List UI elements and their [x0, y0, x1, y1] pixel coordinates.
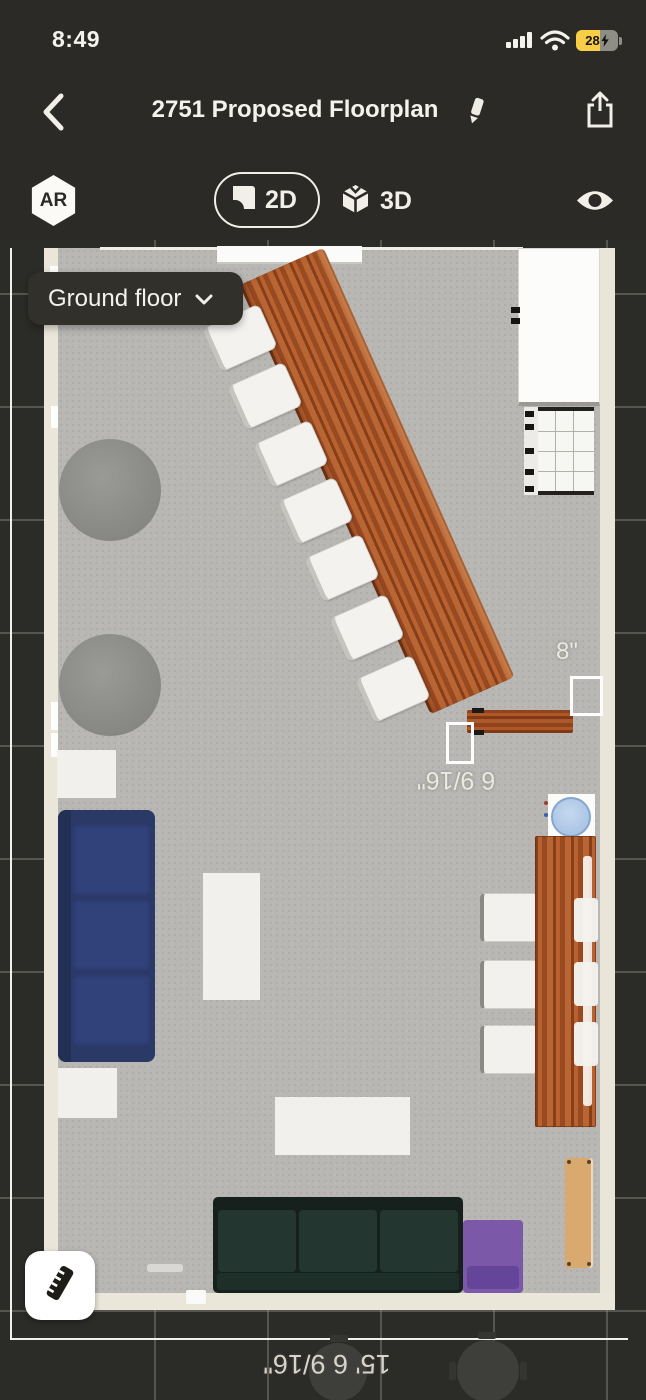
wall-handle-mark — [186, 1290, 206, 1304]
floor-selector-label: Ground floor — [48, 285, 181, 313]
pencil-icon[interactable] — [460, 93, 492, 129]
faucet-dot — [544, 813, 548, 817]
side-table[interactable] — [58, 1068, 117, 1118]
storage-rack[interactable] — [524, 407, 594, 495]
wall-opening-marker[interactable] — [446, 722, 474, 764]
dimension-label-top: 8" — [556, 638, 600, 666]
battery-charging-icon: 28 — [576, 30, 618, 51]
ar-badge-label: AR — [40, 190, 67, 212]
cube-3d-icon — [340, 183, 371, 220]
coffee-table[interactable] — [203, 873, 260, 1000]
round-sink[interactable] — [551, 797, 591, 837]
back-button[interactable] — [36, 90, 72, 134]
faucet-dot — [544, 801, 548, 805]
battery-nub — [619, 37, 622, 45]
side-table[interactable] — [57, 750, 116, 798]
status-time: 8:49 — [52, 26, 100, 53]
eye-icon[interactable] — [572, 185, 618, 215]
fridge-knob — [511, 318, 520, 324]
dining-chair[interactable] — [480, 893, 538, 942]
left-dimension-line — [10, 248, 12, 1340]
wifi-icon — [540, 29, 570, 56]
tab-2d-label: 2D — [265, 186, 297, 215]
dining-chair[interactable] — [480, 1025, 538, 1074]
floorplan-2d-icon — [231, 184, 256, 216]
green-sofa[interactable] — [213, 1197, 463, 1293]
purple-armchair[interactable] — [463, 1220, 523, 1293]
chevron-down-icon — [195, 285, 213, 313]
wall-opening-marker[interactable] — [570, 676, 603, 716]
floor-selector[interactable]: Ground floor — [28, 272, 243, 325]
wall-bottom[interactable] — [44, 1293, 615, 1310]
window-mark — [51, 406, 58, 428]
bottom-dimension-line — [10, 1338, 628, 1340]
window-mark — [51, 702, 58, 730]
dining-chair[interactable] — [480, 960, 538, 1009]
page-title: 2751 Proposed Floorplan — [120, 96, 470, 124]
dimmed-chair — [330, 1335, 348, 1342]
wall-clamp-mark — [472, 708, 484, 713]
cellular-signal-icon — [506, 32, 532, 48]
dimmed-chair — [478, 1332, 496, 1339]
dimension-label-bottom: 15' 6 9/16" — [227, 1348, 427, 1379]
dimmed-round-table — [457, 1340, 519, 1400]
tucked-chair[interactable] — [574, 898, 598, 942]
dimension-label-side: 6 9/16" — [393, 765, 519, 794]
share-icon[interactable] — [582, 88, 618, 132]
floorplan-canvas[interactable]: 8" 6 9/16" — [0, 240, 646, 1400]
rect-table[interactable] — [275, 1097, 410, 1155]
tucked-chair[interactable] — [574, 962, 598, 1006]
round-table[interactable] — [59, 439, 161, 541]
round-table[interactable] — [59, 634, 161, 736]
tucked-chair[interactable] — [574, 1022, 598, 1066]
ar-mode-button[interactable]: AR — [30, 175, 77, 226]
wall-right[interactable] — [600, 248, 615, 1310]
dimmed-chair — [520, 1362, 527, 1380]
refrigerator[interactable] — [518, 248, 600, 406]
battery-percent: 28 — [585, 33, 599, 48]
tab-3d-label: 3D — [380, 187, 412, 216]
navy-sofa[interactable] — [58, 810, 155, 1062]
floor-mark — [147, 1264, 183, 1272]
fridge-knob — [511, 307, 520, 313]
measure-tool-button[interactable] — [25, 1251, 95, 1320]
dimmed-chair — [449, 1362, 456, 1380]
tab-2d-view[interactable]: 2D — [214, 172, 320, 228]
tab-3d-view[interactable]: 3D — [340, 183, 412, 220]
ruler-icon — [42, 1263, 78, 1308]
wooden-bench[interactable] — [565, 1158, 593, 1268]
